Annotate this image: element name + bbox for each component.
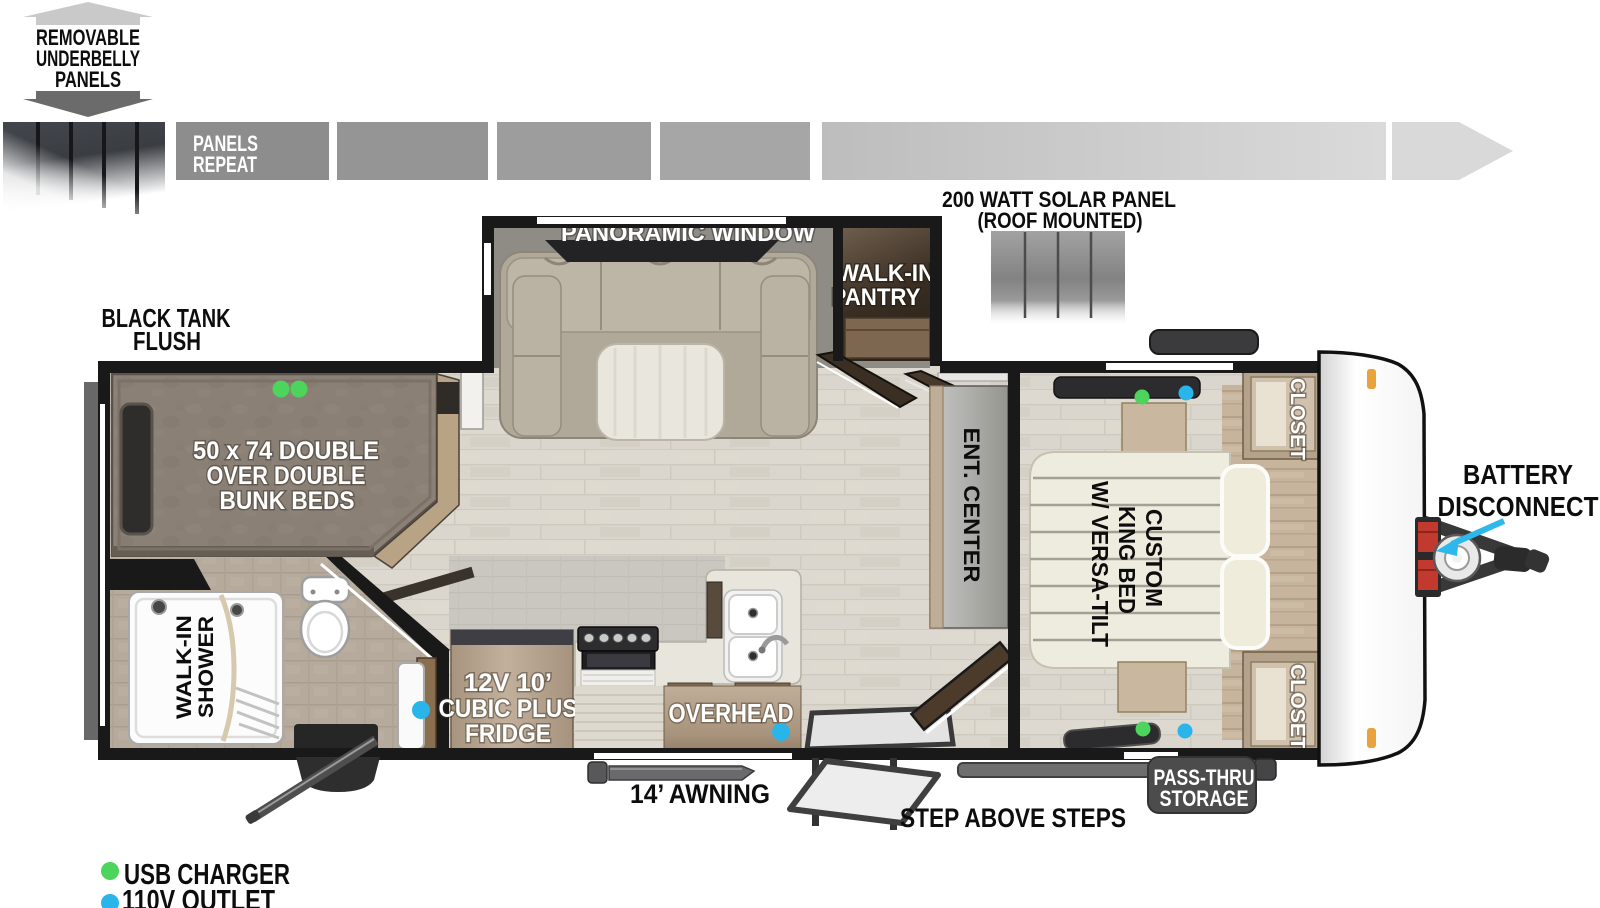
svg-text:110V OUTLET: 110V OUTLET <box>122 885 275 908</box>
svg-text:WALK-IN: WALK-IN <box>173 615 196 719</box>
svg-text:CUSTOM: CUSTOM <box>1141 509 1167 607</box>
svg-text:CUBIC PLUS: CUBIC PLUS <box>439 695 578 723</box>
svg-text:PANELS: PANELS <box>55 67 121 92</box>
svg-text:12V 10’: 12V 10’ <box>464 669 552 697</box>
svg-text:BUNK BEDS: BUNK BEDS <box>220 487 355 515</box>
svg-text:REPEAT: REPEAT <box>193 152 257 177</box>
svg-text:FRIDGE: FRIDGE <box>465 720 551 748</box>
svg-text:WALK-IN: WALK-IN <box>838 260 935 287</box>
svg-text:OVER DOUBLE: OVER DOUBLE <box>207 462 366 490</box>
svg-text:W/ VERSA-TILT: W/ VERSA-TILT <box>1087 481 1113 647</box>
svg-text:ENT. CENTER: ENT. CENTER <box>959 428 984 583</box>
svg-text:50 x 74 DOUBLE: 50 x 74 DOUBLE <box>193 437 379 465</box>
svg-text:BATTERY: BATTERY <box>1463 459 1573 490</box>
svg-text:STEP ABOVE STEPS: STEP ABOVE STEPS <box>900 803 1126 833</box>
svg-text:CLOSET: CLOSET <box>1286 378 1308 460</box>
svg-text:PANTRY: PANTRY <box>832 284 921 311</box>
svg-text:DISCONNECT: DISCONNECT <box>1438 491 1599 522</box>
svg-text:(ROOF MOUNTED): (ROOF MOUNTED) <box>978 208 1143 233</box>
svg-text:CLOSET: CLOSET <box>1286 664 1308 750</box>
svg-text:FLUSH: FLUSH <box>133 326 201 356</box>
svg-text:KING BED: KING BED <box>1114 506 1140 614</box>
svg-text:OVERHEAD: OVERHEAD <box>669 698 794 728</box>
svg-text:SHOWER: SHOWER <box>195 616 218 718</box>
svg-text:14’ AWNING: 14’ AWNING <box>630 779 770 809</box>
svg-text:STORAGE: STORAGE <box>1160 786 1249 811</box>
